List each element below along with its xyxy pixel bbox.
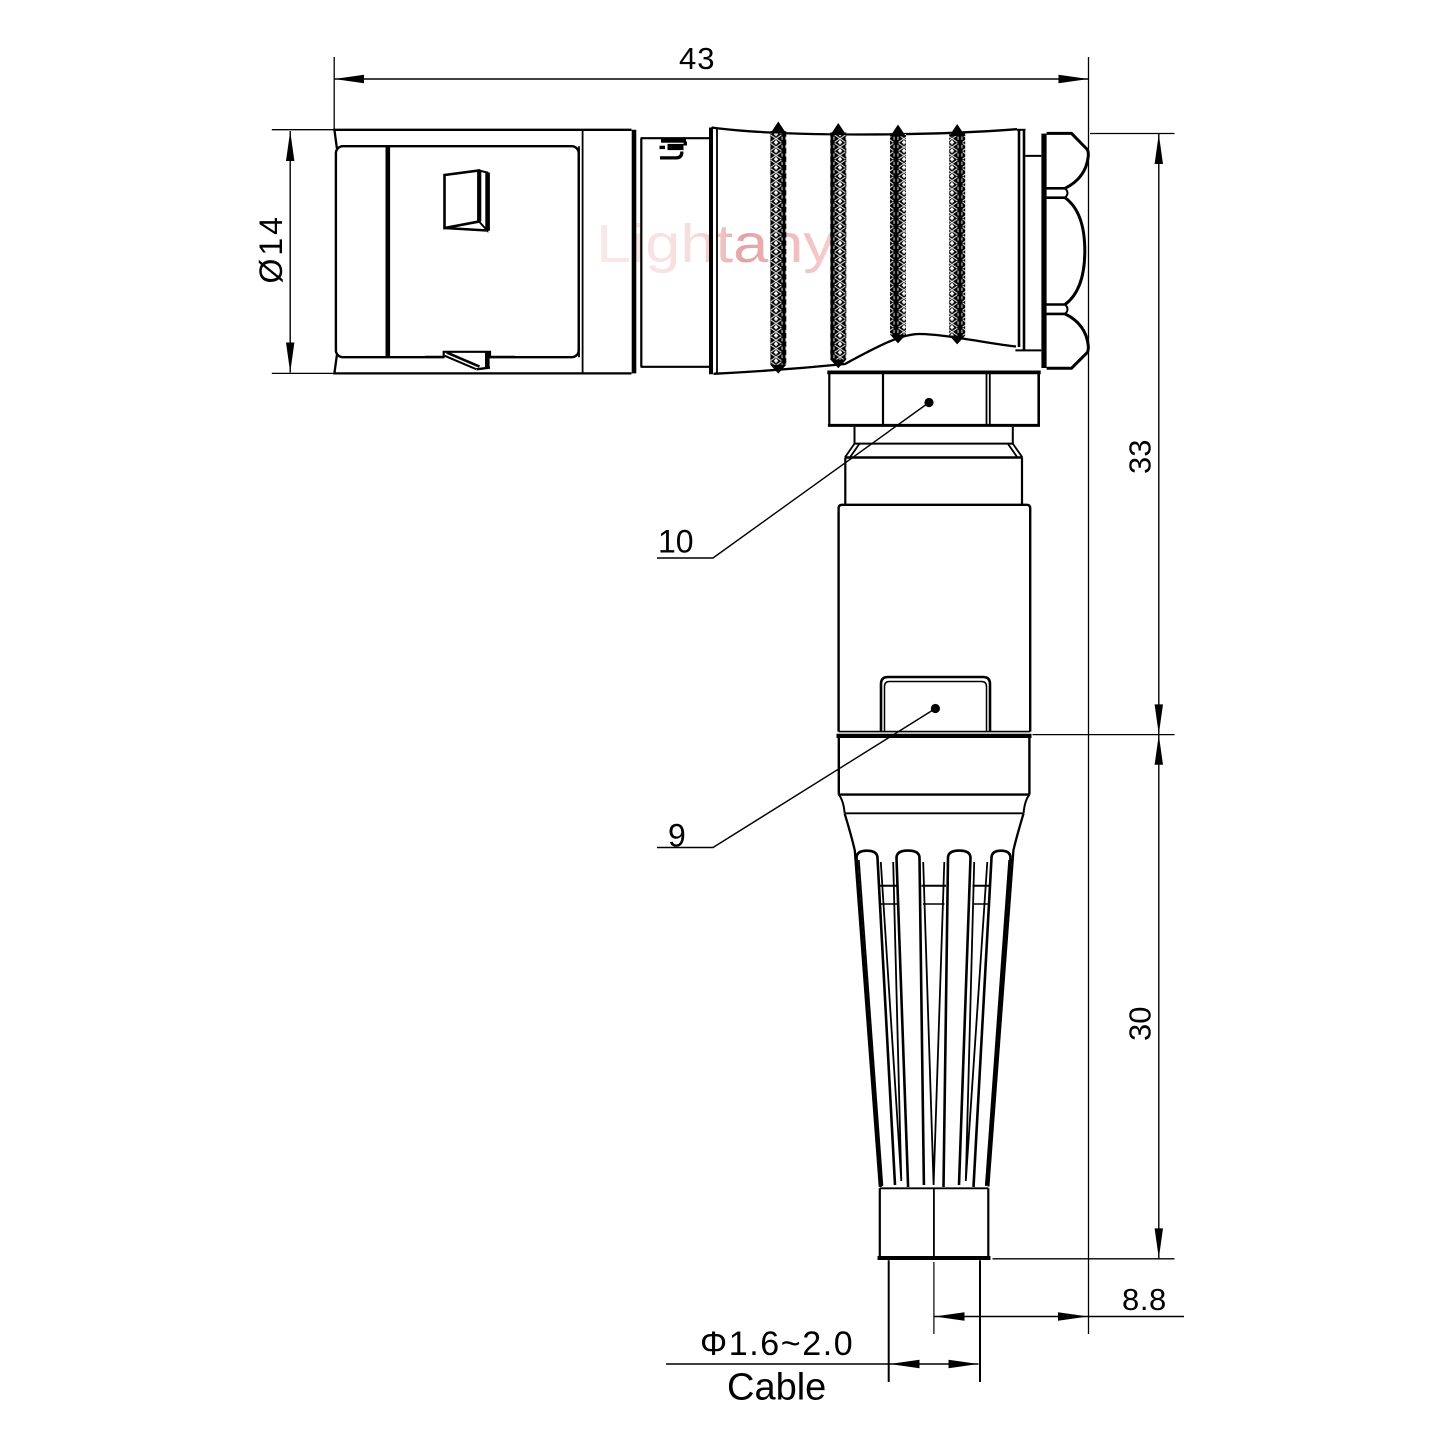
svg-text:8.8: 8.8 (1122, 1282, 1167, 1317)
svg-text:10: 10 (658, 524, 694, 560)
svg-text:Cable: Cable (727, 1367, 826, 1409)
svg-text:30: 30 (1123, 1007, 1158, 1041)
svg-text:43: 43 (679, 41, 715, 76)
svg-text:9: 9 (668, 818, 686, 854)
svg-text:Ø14: Ø14 (253, 214, 289, 283)
svg-text:Φ1.6~2.0: Φ1.6~2.0 (700, 1325, 854, 1363)
svg-text:33: 33 (1123, 440, 1158, 474)
